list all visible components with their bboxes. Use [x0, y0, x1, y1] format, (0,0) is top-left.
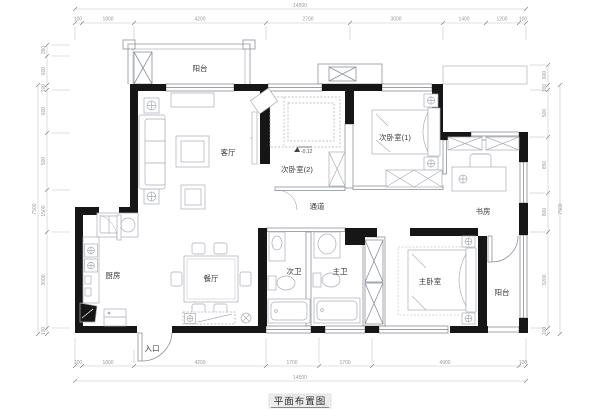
svg-text:850: 850 — [542, 161, 548, 170]
storage-icon — [486, 137, 519, 150]
window — [166, 84, 234, 91]
tv-icon — [250, 112, 257, 164]
svg-text:100: 100 — [519, 360, 528, 366]
plant-icon — [144, 189, 159, 204]
svg-text:1800: 1800 — [102, 17, 113, 23]
nightstand-icon — [424, 94, 438, 107]
svg-text:100: 100 — [542, 327, 548, 336]
dim-right-total: 7500 — [558, 203, 564, 214]
room-label-bath-master: 主卫 — [333, 266, 348, 276]
svg-text:100: 100 — [41, 84, 47, 93]
room-label-bedroom1: 次卧室(1) — [379, 132, 411, 142]
room-label-entry: 入口 — [145, 344, 160, 353]
closet-icon — [329, 152, 345, 186]
fridge-icon — [104, 309, 126, 326]
bedroom2-door-icon — [277, 190, 297, 210]
room-label-bath-guest: 次卫 — [287, 266, 302, 276]
svg-text:3000: 3000 — [41, 274, 47, 285]
dim-left-total: 7500 — [32, 203, 38, 214]
window — [325, 326, 365, 333]
room-label-bedroom-master: 主卧室 — [419, 276, 442, 286]
coffee-table-icon — [176, 136, 209, 167]
svg-text:800: 800 — [542, 208, 548, 217]
svg-text:4200: 4200 — [194, 360, 205, 366]
plan-title: 平面布置图 — [274, 396, 327, 408]
svg-text:1500: 1500 — [41, 205, 47, 216]
room-label-balcony-top: 阳台 — [193, 63, 208, 73]
svg-text:1200: 1200 — [496, 17, 507, 23]
room-label-living: 客厅 — [221, 147, 236, 157]
svg-text:1700: 1700 — [286, 360, 297, 366]
sink-icon — [314, 232, 340, 258]
bathtub-icon — [268, 299, 310, 323]
svg-text:600: 600 — [542, 71, 548, 80]
tv-cabinet-icon — [171, 93, 214, 107]
window — [520, 162, 527, 203]
room-label-study: 书房 — [476, 206, 491, 216]
sofa-icon — [139, 115, 165, 189]
svg-text:100: 100 — [74, 360, 83, 366]
window — [520, 235, 527, 318]
svg-text:100: 100 — [519, 17, 528, 23]
storage-icon — [448, 137, 482, 150]
svg-text:3200: 3200 — [542, 274, 548, 285]
svg-text:2700: 2700 — [302, 17, 313, 23]
nightstand-icon — [462, 236, 475, 247]
svg-text:4900: 4900 — [439, 360, 450, 366]
elevation-marker: -0.12 — [294, 147, 313, 155]
elevation-value: -0.12 — [301, 149, 313, 155]
svg-text:100: 100 — [41, 327, 47, 336]
ac-platform-icon — [329, 67, 356, 81]
svg-text:500: 500 — [542, 109, 548, 118]
svg-text:4200: 4200 — [194, 17, 205, 23]
window — [268, 84, 322, 91]
svg-text:600: 600 — [41, 67, 47, 76]
wardrobe-column-icon — [363, 237, 385, 326]
room-label-corridor: 通道 — [310, 201, 325, 211]
room-label-balcony-bottom: 阳台 — [495, 287, 510, 297]
stove-icon — [80, 303, 97, 322]
bathtub-icon — [314, 298, 360, 323]
toilet-icon — [268, 276, 295, 290]
floor-plan-page: 14500 100 1800 4200 2700 3000 1400 1200 … — [0, 0, 600, 419]
plant-icon — [144, 98, 159, 113]
nightstand-icon — [462, 313, 475, 324]
svg-text:1800: 1800 — [102, 360, 113, 366]
svg-text:100: 100 — [74, 17, 83, 23]
floor-plan-canvas: 14500 100 1800 4200 2700 3000 1400 1200 … — [0, 0, 600, 419]
dining-chair-icon — [214, 243, 227, 254]
room-label-dining: 餐厅 — [204, 274, 219, 283]
window — [266, 326, 311, 333]
dining-chair-icon — [192, 243, 205, 254]
shoe-cabinet-icon — [183, 312, 251, 324]
svg-text:600: 600 — [41, 107, 47, 116]
kitchen-counter-icon — [83, 237, 99, 303]
nightstand-icon — [424, 157, 438, 170]
svg-text:500: 500 — [41, 157, 47, 166]
washing-machine-icon — [134, 52, 152, 84]
side-table-icon — [181, 185, 205, 209]
svg-text:1400: 1400 — [458, 17, 469, 23]
svg-text:100: 100 — [542, 84, 548, 93]
room-label-kitchen: 厨房 — [106, 270, 121, 280]
svg-text:1700: 1700 — [339, 360, 350, 366]
svg-text:350: 350 — [41, 46, 47, 55]
dining-chair-icon — [240, 272, 251, 286]
bed2-icon — [270, 97, 340, 147]
svg-text:3000: 3000 — [390, 17, 401, 23]
window — [382, 84, 432, 91]
dim-bottom-total: 14500 — [293, 375, 307, 381]
window — [379, 326, 448, 333]
balcony-door-icon — [488, 236, 518, 262]
furniture — [80, 88, 519, 326]
desk-icon — [452, 167, 506, 191]
wardrobe-icon — [386, 170, 442, 187]
title-block: 平面布置图 — [269, 394, 331, 408]
room-label-bedroom2: 次卧室(2) — [281, 164, 313, 174]
sink-icon — [269, 232, 285, 261]
bed1-icon — [372, 108, 440, 156]
dim-top-total: 14500 — [293, 3, 307, 9]
dining-chair-icon — [171, 272, 182, 286]
